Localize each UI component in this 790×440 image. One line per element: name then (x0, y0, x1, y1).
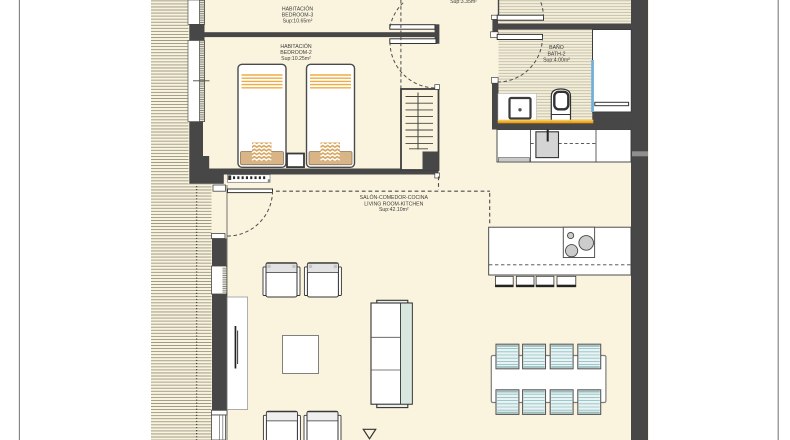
svg-text:HABITACIÓN: HABITACIÓN (280, 43, 312, 50)
svg-text:Sup:3.35m²: Sup:3.35m² (450, 0, 477, 5)
svg-text:Sup:4.00m²: Sup:4.00m² (543, 57, 570, 63)
svg-text:Sup:10.25m²: Sup:10.25m² (281, 56, 311, 62)
svg-text:BATH-2: BATH-2 (547, 51, 565, 57)
svg-text:SALÓN-COMEDOR-COCINA: SALÓN-COMEDOR-COCINA (360, 194, 429, 201)
svg-text:Sup:10.65m²: Sup:10.65m² (283, 19, 313, 25)
svg-text:Sup:42.10m²: Sup:42.10m² (379, 207, 409, 213)
svg-text:HABITACIÓN: HABITACIÓN (282, 5, 314, 12)
svg-text:BAÑO: BAÑO (549, 44, 564, 51)
